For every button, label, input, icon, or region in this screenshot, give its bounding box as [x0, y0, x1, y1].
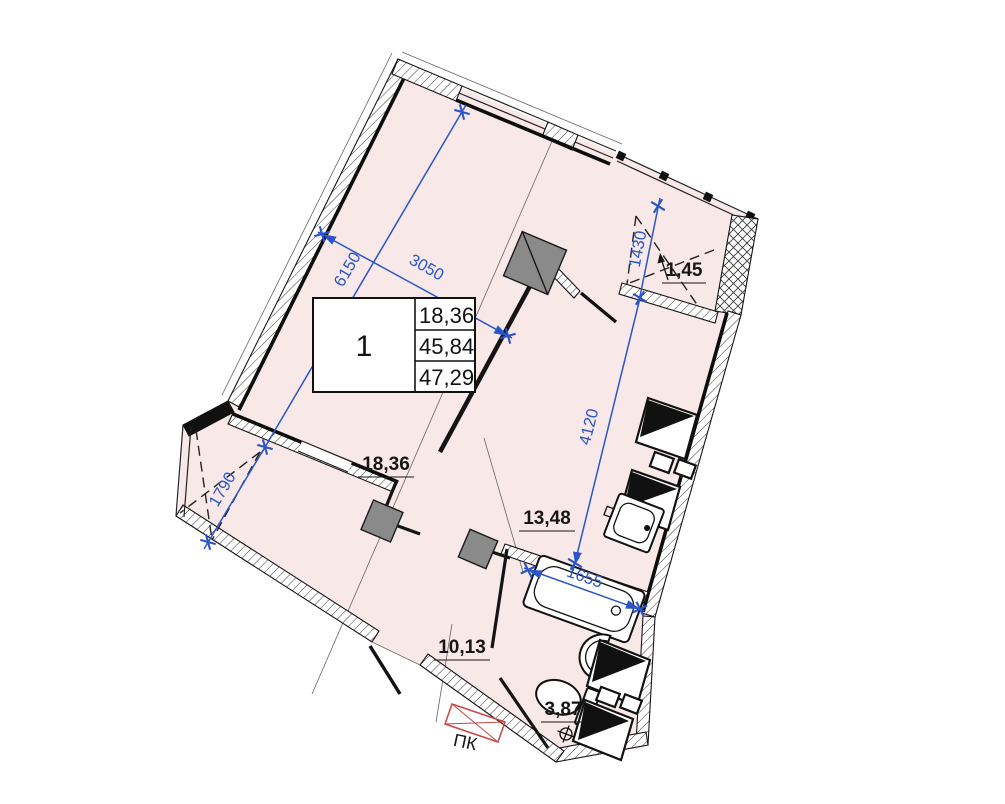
legend-living-area: 18,36 [419, 303, 474, 328]
legend-apartment-area: 45,84 [419, 334, 474, 359]
convector-label: ПК [452, 730, 480, 755]
balcony-area-label: 1,45 [666, 260, 703, 281]
floor-plan-drawing: ПК 6150 3050 [0, 0, 1005, 804]
living-room-area-label: 18,36 [362, 454, 410, 475]
legend-total-area: 47,29 [419, 365, 474, 390]
legend-table: 1 18,36 45,84 47,29 [313, 298, 475, 392]
hallway-area-label: 10,13 [438, 637, 486, 658]
bathroom-area-label: 3,87 [545, 699, 582, 720]
kitchen-area-label: 13,48 [523, 508, 571, 529]
apartment-number: 1 [356, 330, 373, 363]
floor-plan-canvas: ПК 6150 3050 [0, 0, 1005, 804]
